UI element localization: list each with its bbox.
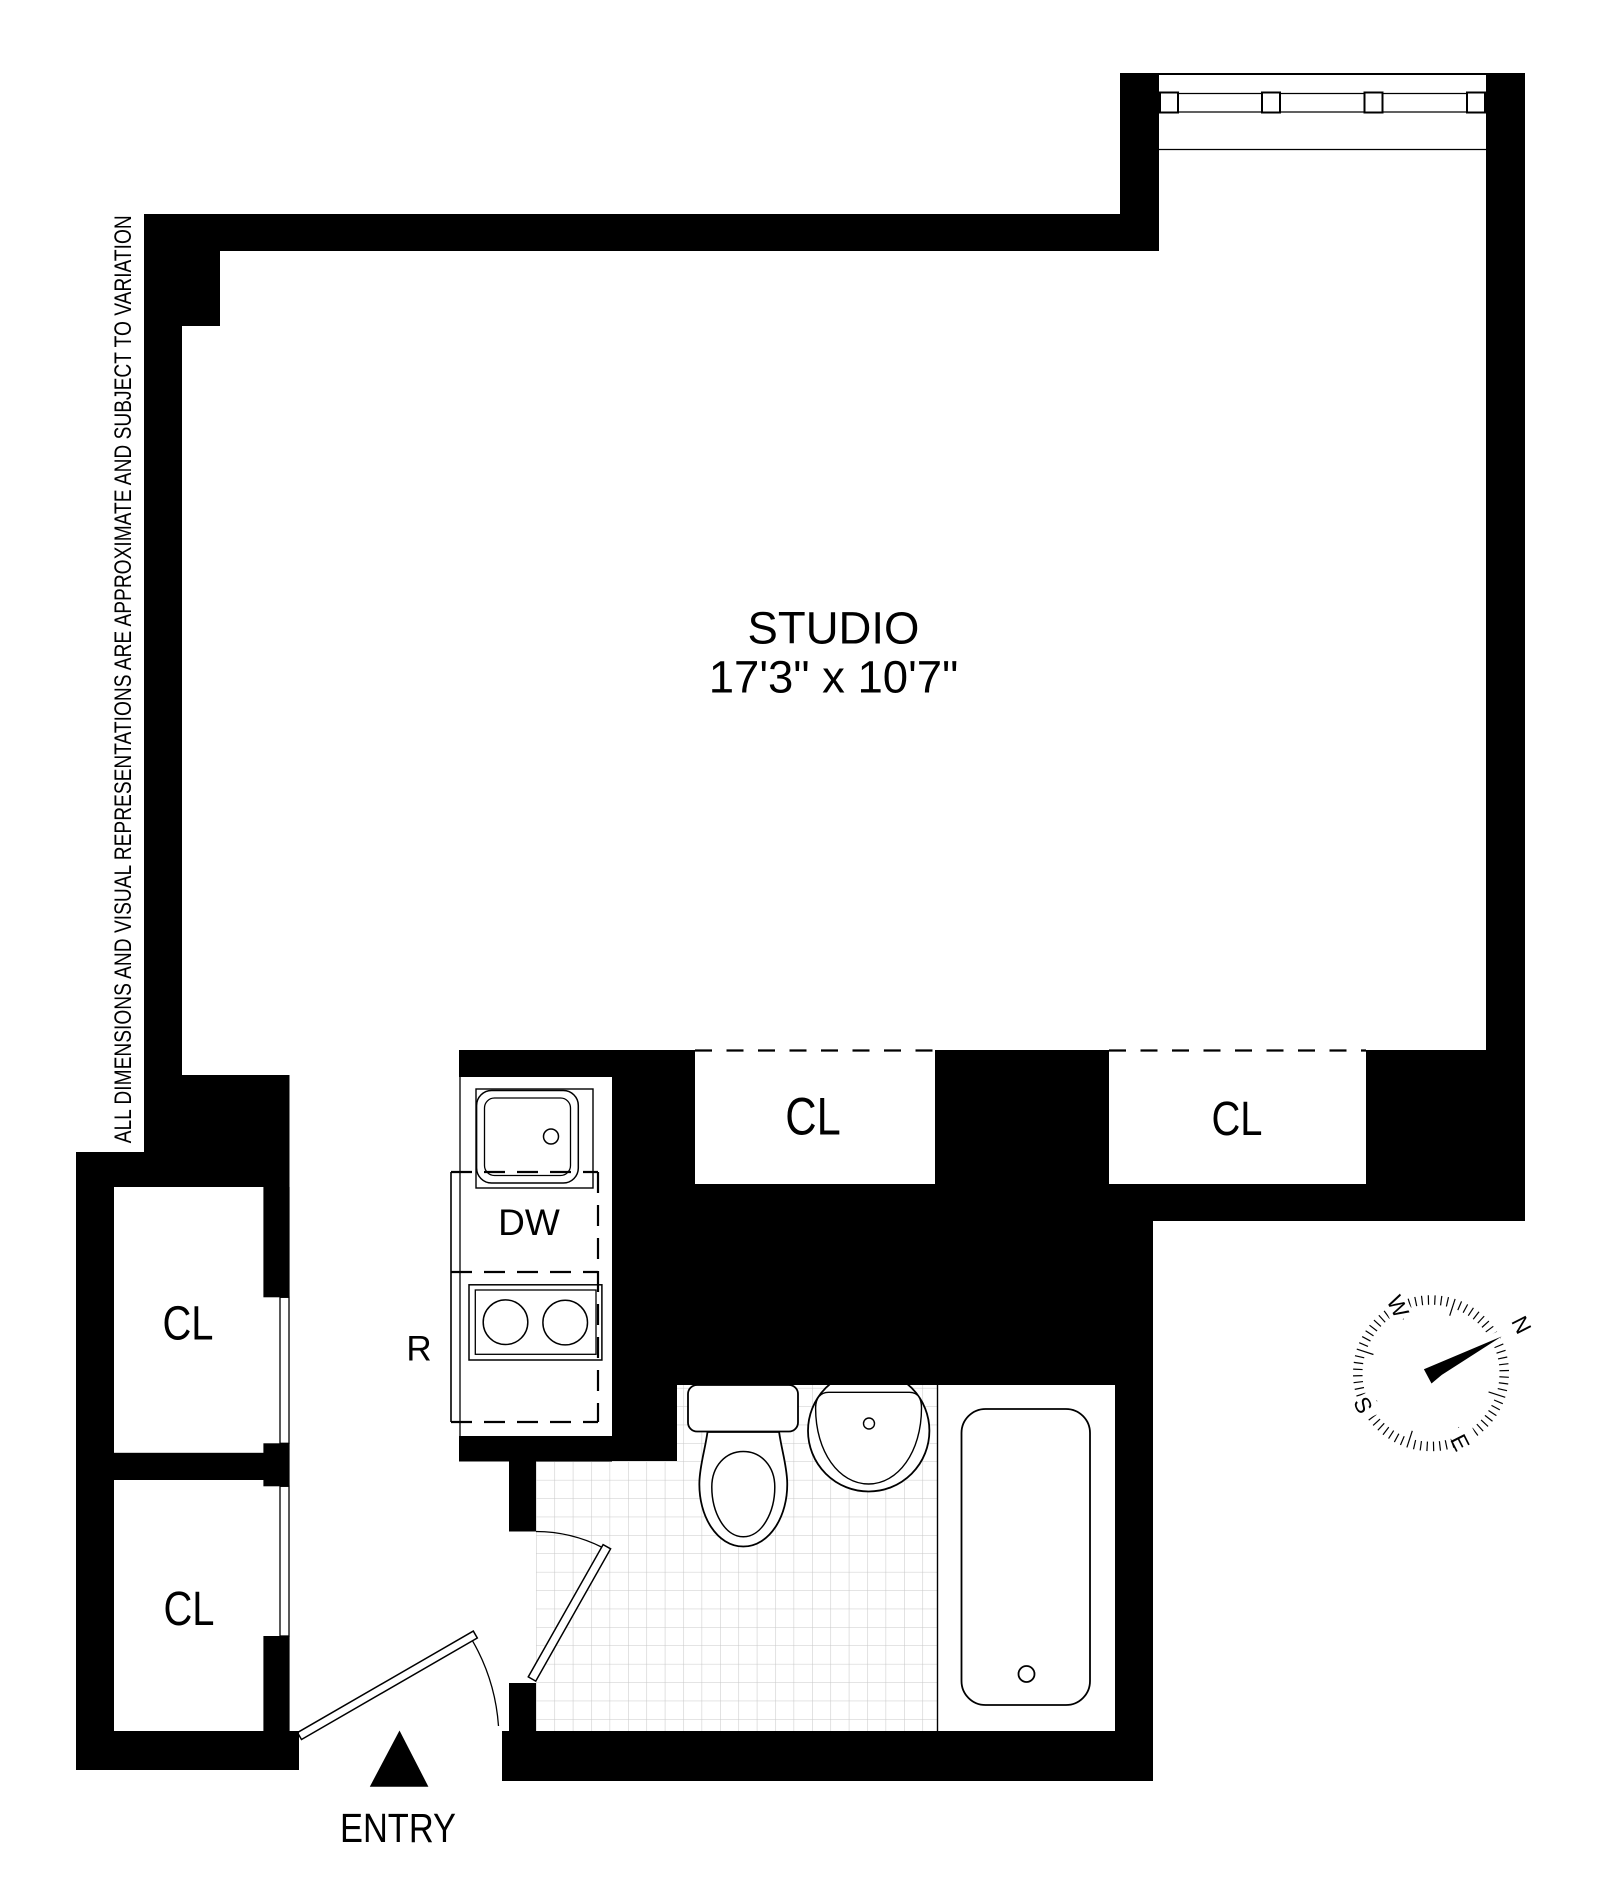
svg-text:CL: CL — [1212, 1093, 1263, 1146]
svg-text:STUDIO: STUDIO — [748, 603, 920, 654]
svg-text:CL: CL — [163, 1297, 214, 1350]
svg-text:ALL DIMENSIONS AND VISUAL REPR: ALL DIMENSIONS AND VISUAL REPRESENTATION… — [110, 215, 137, 1143]
svg-text:CL: CL — [785, 1088, 841, 1147]
svg-text:CL: CL — [164, 1583, 215, 1636]
svg-text:17'3" x 10'7": 17'3" x 10'7" — [709, 652, 959, 703]
svg-text:R: R — [406, 1330, 431, 1369]
svg-text:ENTRY: ENTRY — [340, 1805, 456, 1851]
svg-text:DW: DW — [498, 1202, 560, 1243]
